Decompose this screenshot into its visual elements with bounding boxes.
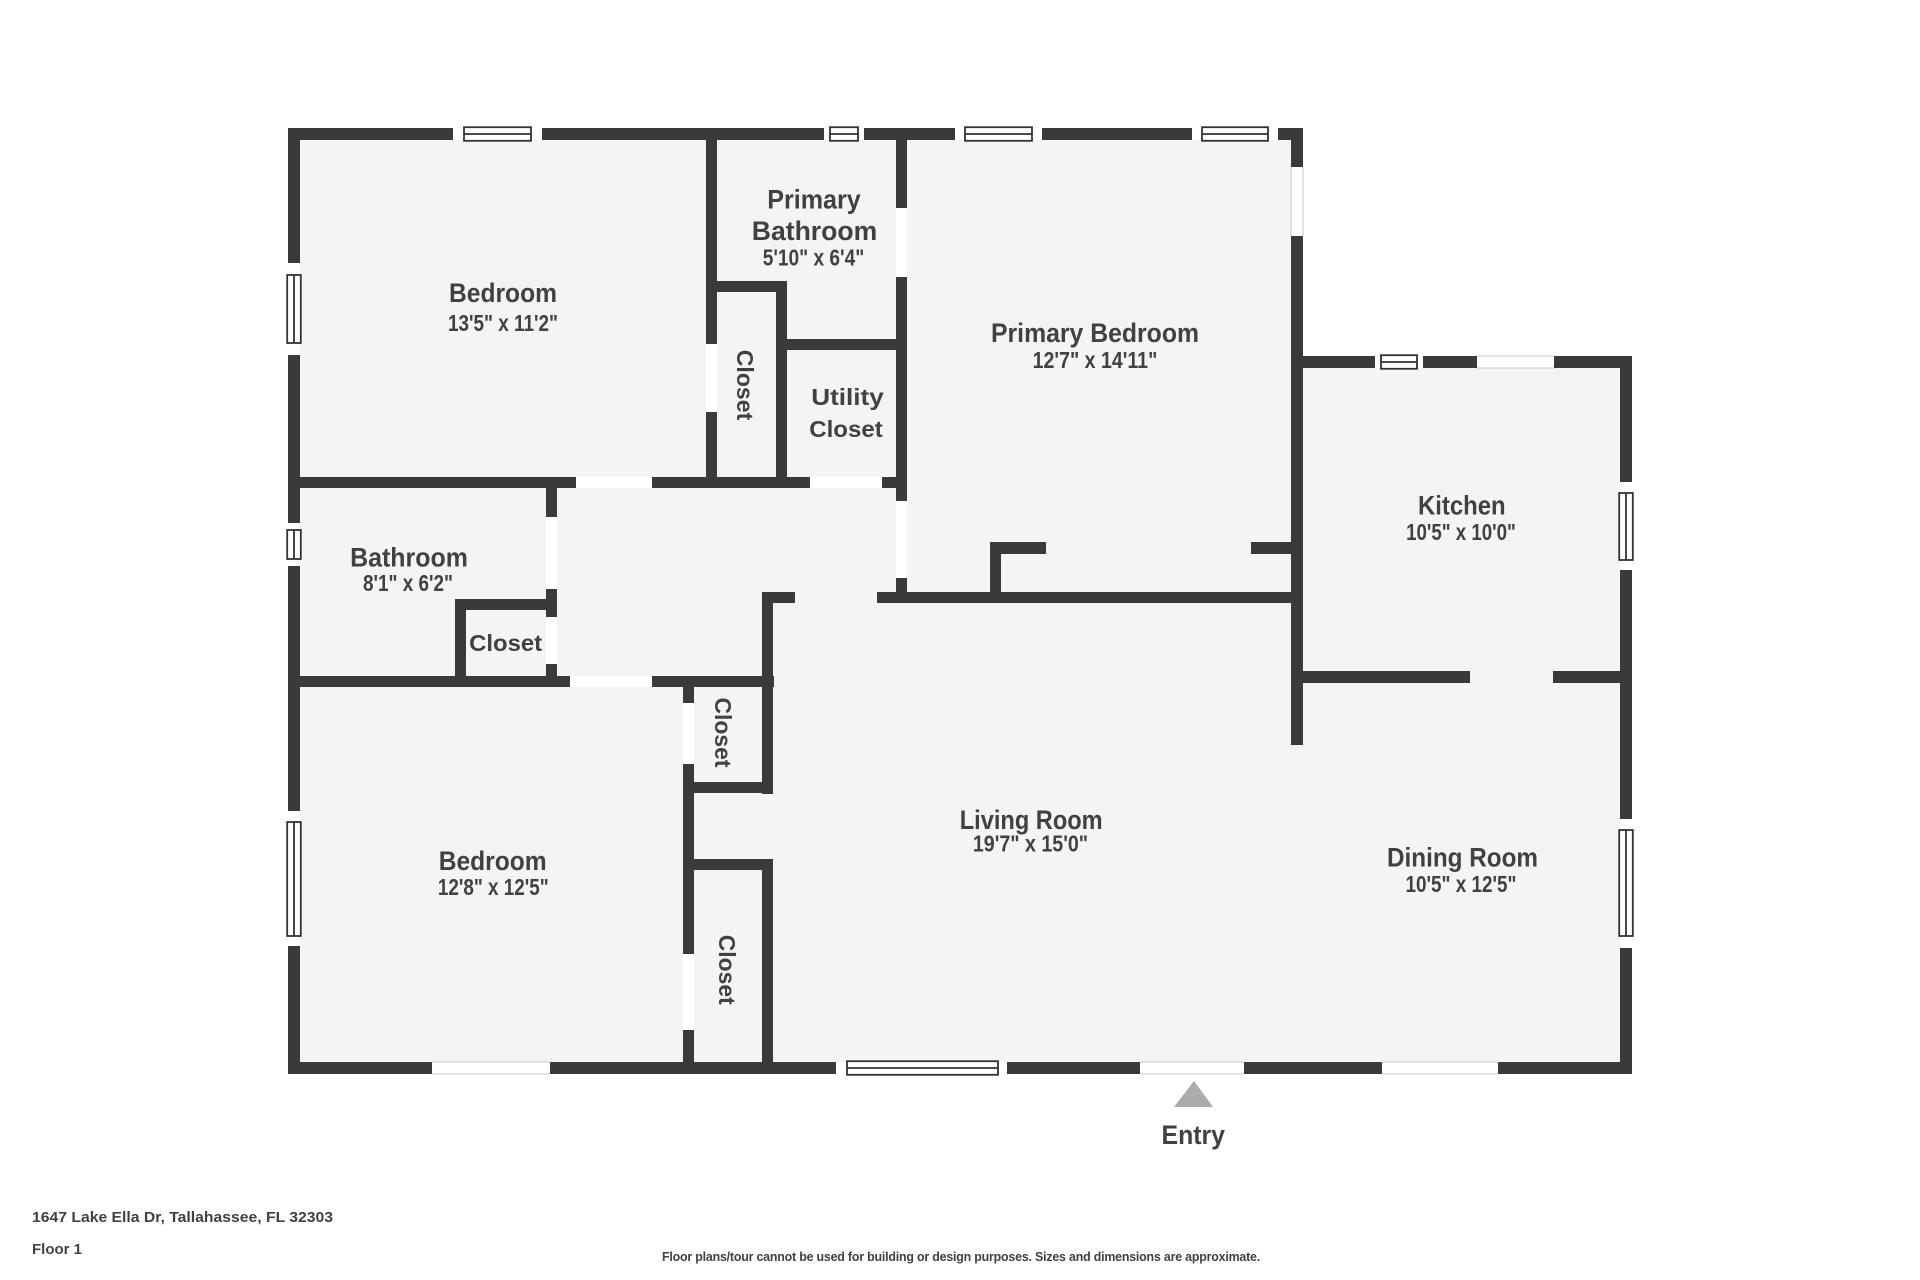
svg-text:5'10" x 6'4": 5'10" x 6'4": [763, 245, 865, 271]
svg-text:Closet: Closet: [809, 416, 883, 442]
svg-text:Utility: Utility: [811, 384, 884, 410]
svg-text:12'7" x 14'11": 12'7" x 14'11": [1033, 347, 1158, 373]
svg-text:13'5" x 11'2": 13'5" x 11'2": [448, 310, 558, 336]
svg-text:Bathroom: Bathroom: [752, 216, 878, 246]
svg-text:Primary Bedroom: Primary Bedroom: [991, 318, 1199, 348]
svg-text:8'1" x 6'2": 8'1" x 6'2": [363, 570, 453, 596]
svg-text:12'8" x 12'5": 12'8" x 12'5": [438, 874, 549, 900]
svg-text:10'5" x 12'5": 10'5" x 12'5": [1406, 871, 1517, 897]
svg-text:19'7" x 15'0": 19'7" x 15'0": [973, 831, 1088, 857]
svg-text:Floor plans/tour cannot be use: Floor plans/tour cannot be used for buil…: [662, 1250, 1260, 1264]
svg-text:Closet: Closet: [732, 350, 758, 421]
svg-text:Bedroom: Bedroom: [449, 278, 557, 308]
svg-text:1647 Lake Ella Dr, Tallahassee: 1647 Lake Ella Dr, Tallahassee, FL 32303: [32, 1209, 333, 1226]
svg-text:Closet: Closet: [714, 935, 740, 1005]
svg-text:Bedroom: Bedroom: [439, 846, 547, 876]
svg-text:Primary: Primary: [767, 185, 861, 215]
svg-text:Closet: Closet: [710, 698, 736, 768]
svg-text:10'5" x 10'0": 10'5" x 10'0": [1406, 519, 1516, 545]
svg-text:Bathroom: Bathroom: [350, 543, 468, 573]
svg-text:Dining Room: Dining Room: [1387, 843, 1538, 873]
svg-text:Floor 1: Floor 1: [32, 1241, 82, 1258]
svg-text:Entry: Entry: [1162, 1120, 1226, 1150]
svg-text:Kitchen: Kitchen: [1418, 491, 1506, 521]
svg-text:Closet: Closet: [469, 630, 542, 656]
